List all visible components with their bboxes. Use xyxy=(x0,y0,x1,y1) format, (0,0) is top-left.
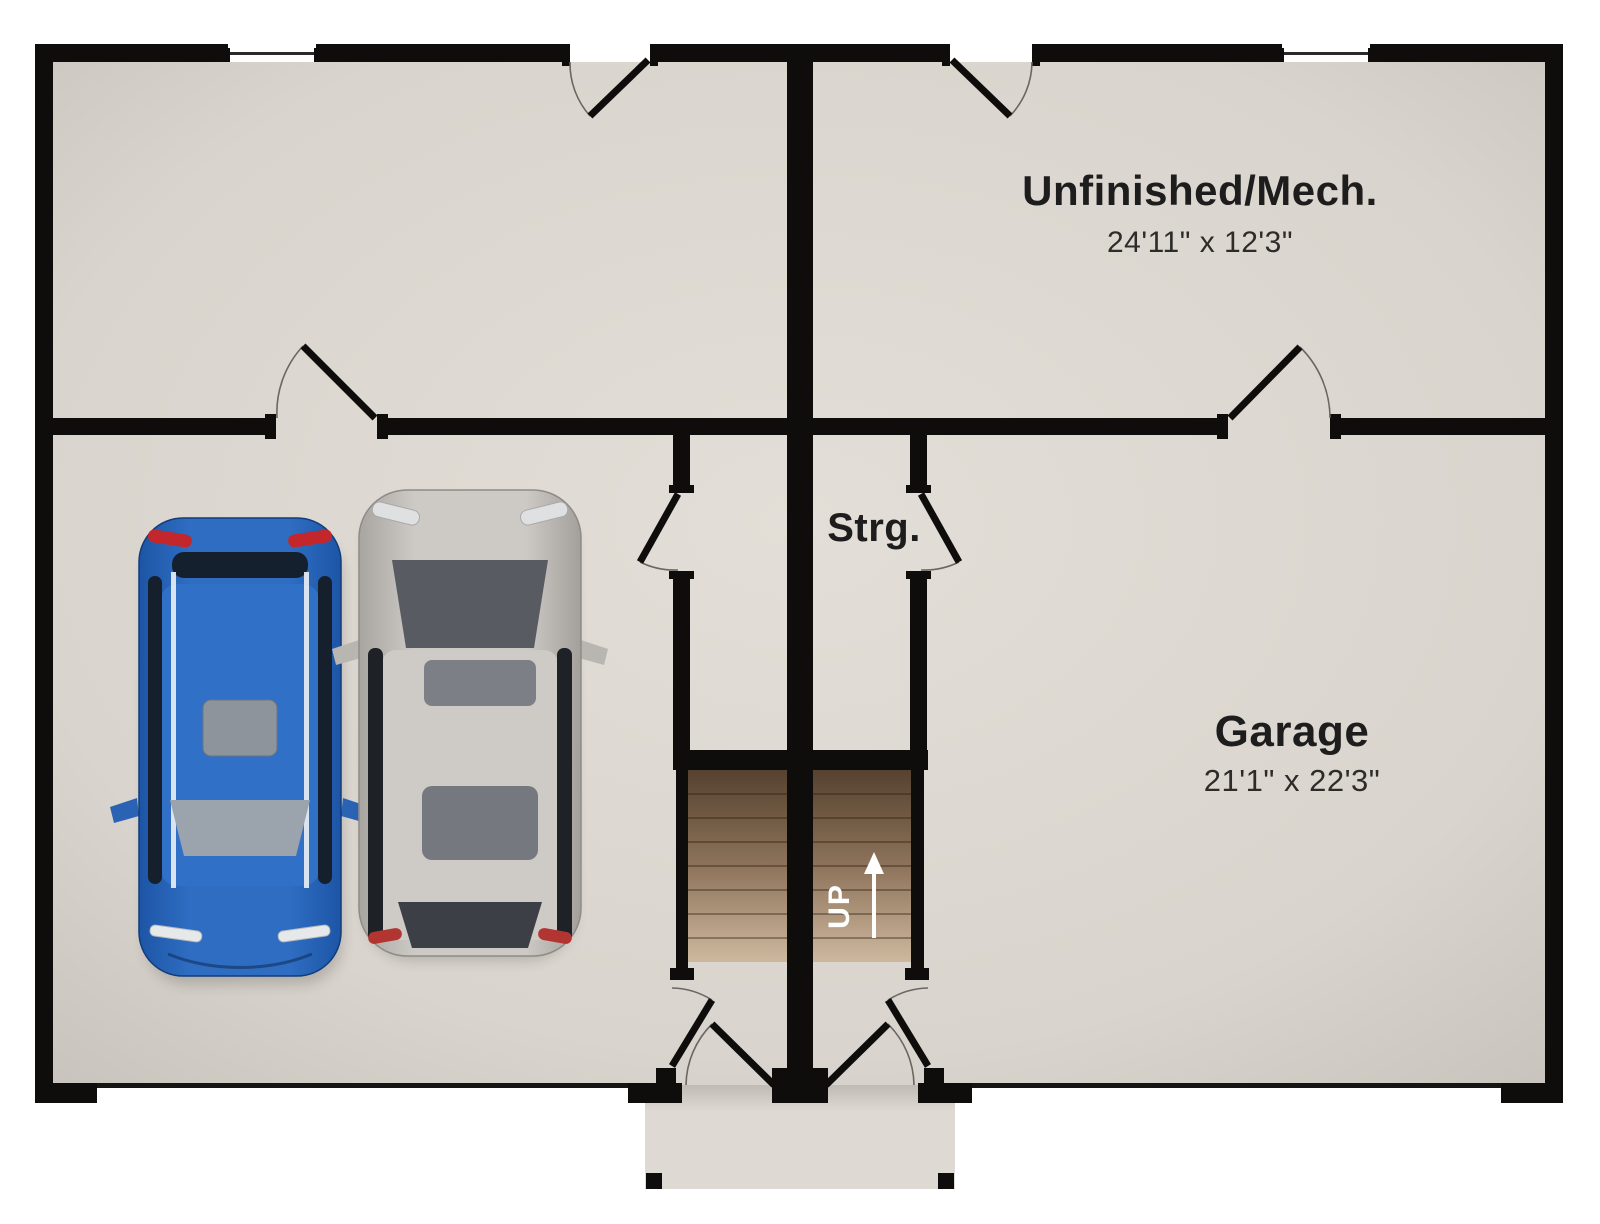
garage-door-left xyxy=(97,1083,628,1088)
car-blue xyxy=(110,518,370,984)
roof-rail xyxy=(171,572,176,888)
garage-door-right xyxy=(972,1083,1501,1088)
staircase-left xyxy=(688,770,787,962)
porch-post xyxy=(938,1173,954,1189)
center-wall xyxy=(787,62,813,1103)
floor-plan: Unfinished/Mech. 24'11" x 12'3" Garage 2… xyxy=(0,0,1600,1224)
unfinished-room-dims: 24'11" x 12'3" xyxy=(1107,226,1293,259)
garage-room-label: Garage xyxy=(1215,707,1370,756)
unfinished-room-label: Unfinished/Mech. xyxy=(1022,167,1378,214)
storage-room-label: Strg. xyxy=(827,506,921,550)
staircase-right xyxy=(813,770,911,962)
porch-post xyxy=(646,1173,662,1189)
sunroof xyxy=(203,700,277,756)
roof-rail xyxy=(304,572,309,888)
sunroof xyxy=(424,660,536,706)
window-top-left xyxy=(224,40,320,62)
garage-room-dims: 21'1" x 22'3" xyxy=(1204,763,1381,798)
floor-plan-drawing: Unfinished/Mech. 24'11" x 12'3" Garage 2… xyxy=(0,0,1600,1224)
rear-window xyxy=(398,902,542,948)
window-top-right xyxy=(1278,40,1374,62)
car-silver xyxy=(332,490,608,960)
windshield xyxy=(170,800,310,856)
windshield xyxy=(392,560,548,648)
sunroof xyxy=(422,786,538,860)
stairs-up-label: UP xyxy=(823,883,856,929)
